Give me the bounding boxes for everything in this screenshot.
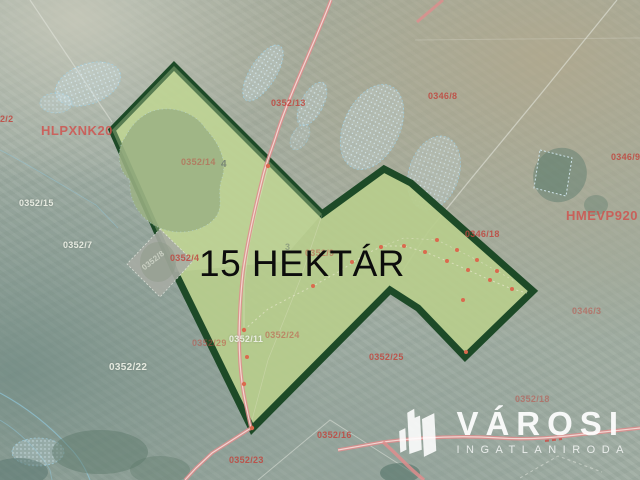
parcel-number-label: 0346/3	[572, 306, 601, 316]
parcel-number-label: 0346/18	[465, 229, 500, 239]
map-watermark-code: HMEVP920	[566, 208, 638, 223]
agency-brand-subtitle: INGATLANIRODA	[456, 444, 630, 456]
parcel-number-label: 0346/8	[428, 91, 457, 101]
parcel-number-label: 0352/15	[19, 198, 54, 208]
parcel-number-label: 0352/13	[271, 98, 306, 108]
parcel-number-label: 0352/4	[170, 253, 199, 263]
city-buildings-icon	[392, 398, 446, 464]
agency-logo: VÁROSI INGATLANIRODA	[392, 398, 630, 464]
parcel-number-label: 0352/14	[181, 157, 216, 167]
agency-brand-name: VÁROSI	[456, 407, 630, 440]
agency-logo-text: VÁROSI INGATLANIRODA	[456, 407, 630, 456]
parcel-number-label: 0352/25	[369, 352, 404, 362]
parcel-number-label: 0346/9	[611, 152, 640, 162]
parcel-number-label: 0352/29	[192, 338, 227, 348]
parcel-number-label: 2/2	[0, 114, 13, 124]
parcel-number-label: 0352/16	[317, 430, 352, 440]
parcel-number-label: 0352/22	[109, 362, 147, 373]
parcel-number-label: 0352/7	[63, 240, 92, 250]
map-watermark-code: HLPXNK20	[41, 123, 113, 138]
parcel-number-label: 0352/23	[229, 455, 264, 465]
parcel-number-label: 4	[221, 159, 227, 170]
parcel-number-label: 0352/11	[229, 334, 263, 344]
listing-map-screenshot: 2/2 0352/13 0346/8 0346/9 0346/18 0346/3…	[0, 0, 640, 480]
parcel-area-title: 15 HEKTÁR	[199, 243, 405, 285]
parcel-number-label: 0352/24	[265, 330, 300, 340]
